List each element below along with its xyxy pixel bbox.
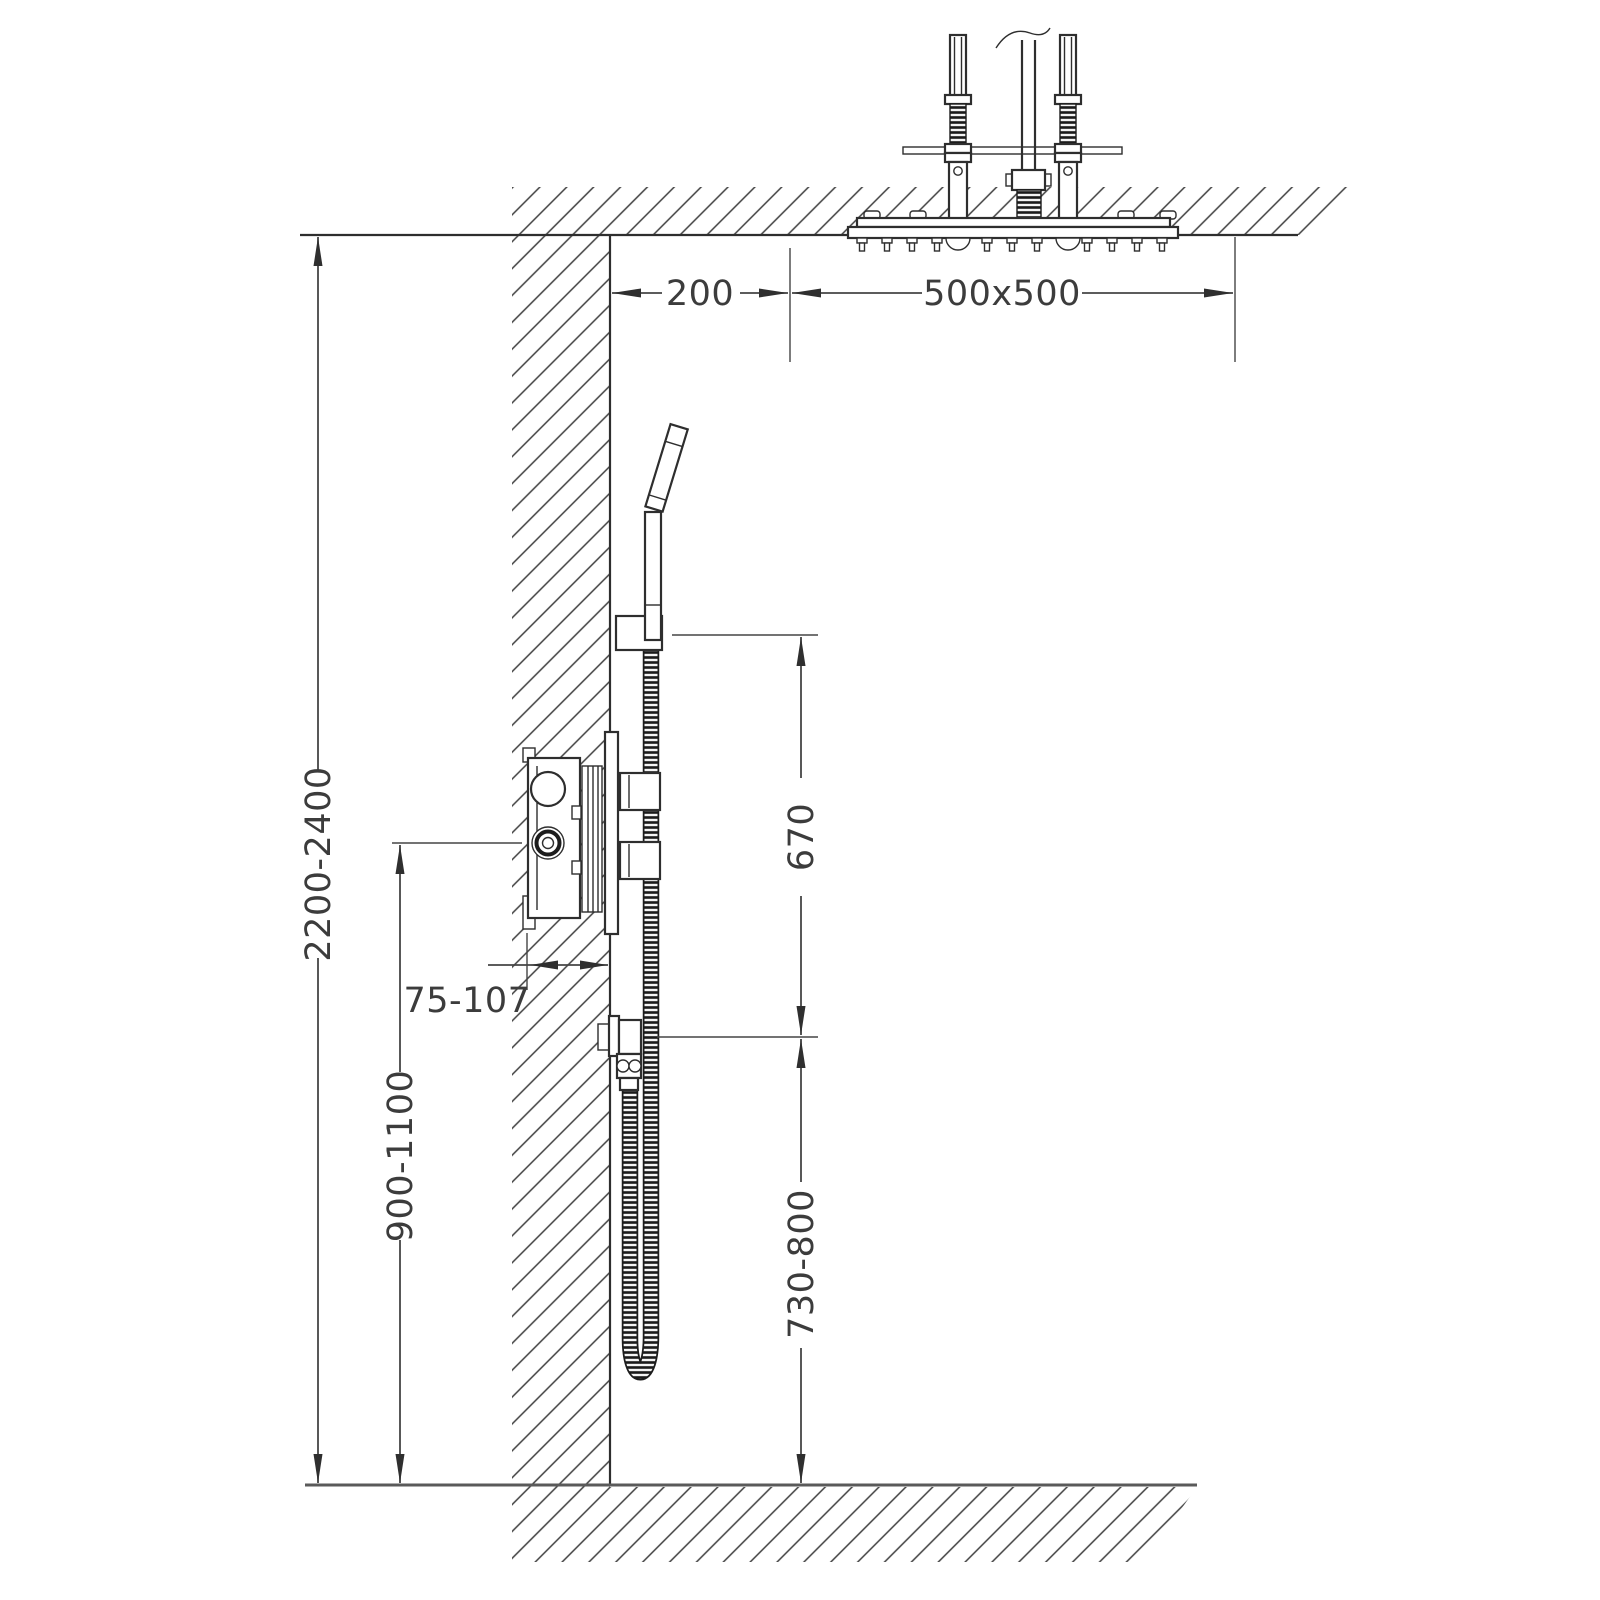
arrow-down (396, 1454, 405, 1483)
nozzle-dome-left (946, 238, 970, 250)
mounting-brace-bar (903, 147, 1122, 154)
arrow-up (396, 845, 405, 874)
floor-hatch (512, 1487, 1197, 1562)
arrow-up (797, 1039, 806, 1068)
valve-port-top (531, 772, 565, 806)
arrow-up (314, 237, 323, 266)
nozzle-dome-right (1056, 238, 1080, 250)
dim-label-holder-to-outlet: 670 (782, 803, 822, 871)
dim-wall-to-head: 200 (612, 274, 788, 314)
dim-label-valve-recess-depth: 75-107 (404, 981, 531, 1021)
dim-label-outlet-to-floor: 730-800 (782, 1189, 822, 1339)
arrow-right (759, 289, 788, 298)
technical-drawing-canvas: 2200-2400 900-1100 200 500x500 670 (0, 0, 1600, 1600)
valve-handle-top (620, 773, 660, 810)
hand-shower-handle (645, 512, 661, 640)
dim-ceiling-to-floor: 2200-2400 (299, 237, 339, 1483)
shower-hose (630, 648, 651, 1372)
arrow-left (792, 289, 821, 298)
trim-plate (605, 732, 618, 934)
shower-head-plate (848, 211, 1178, 251)
threaded-nipple (1017, 190, 1041, 219)
dim-head-size: 500x500 (792, 274, 1233, 314)
arrow-up (797, 637, 806, 666)
arrow-right (1204, 289, 1233, 298)
mounting-rod-left (945, 35, 971, 229)
valve-plate-stack (582, 766, 602, 912)
shower-installation-diagram: 2200-2400 900-1100 200 500x500 670 (0, 0, 1600, 1600)
valve-handle-bottom (620, 842, 660, 879)
arrow-down (797, 1006, 806, 1035)
nozzle-row (857, 238, 1167, 251)
dim-holder-to-outlet: 670 (782, 637, 822, 1035)
arrow-left (612, 289, 641, 298)
dim-label-wall-to-head: 200 (666, 274, 734, 314)
hand-shower (616, 424, 688, 650)
dim-outlet-to-floor: 730-800 (782, 1039, 822, 1483)
arrow-down (314, 1454, 323, 1483)
pipe-coupling (1012, 170, 1045, 190)
dim-label-valve-center-height: 900-1100 (381, 1070, 421, 1243)
arrow-down (797, 1454, 806, 1483)
dim-valve-center-height: 900-1100 (381, 845, 421, 1483)
mounting-rod-right (1055, 35, 1081, 229)
dim-label-head-size: 500x500 (923, 274, 1081, 314)
ceiling-shower-assembly (848, 28, 1178, 251)
dim-label-ceiling-to-floor: 2200-2400 (299, 766, 339, 961)
hand-shower-head (645, 424, 687, 512)
